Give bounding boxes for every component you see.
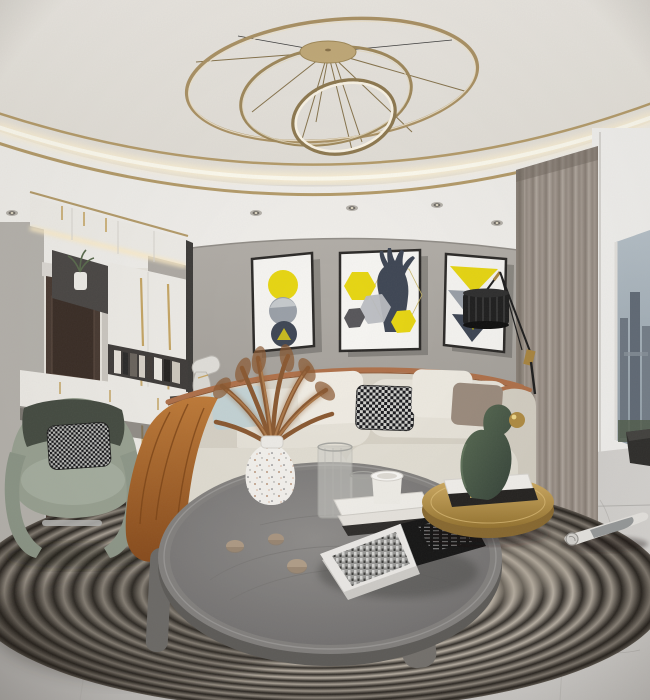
living-room-render xyxy=(0,0,650,700)
vignette-overlay xyxy=(0,0,650,700)
